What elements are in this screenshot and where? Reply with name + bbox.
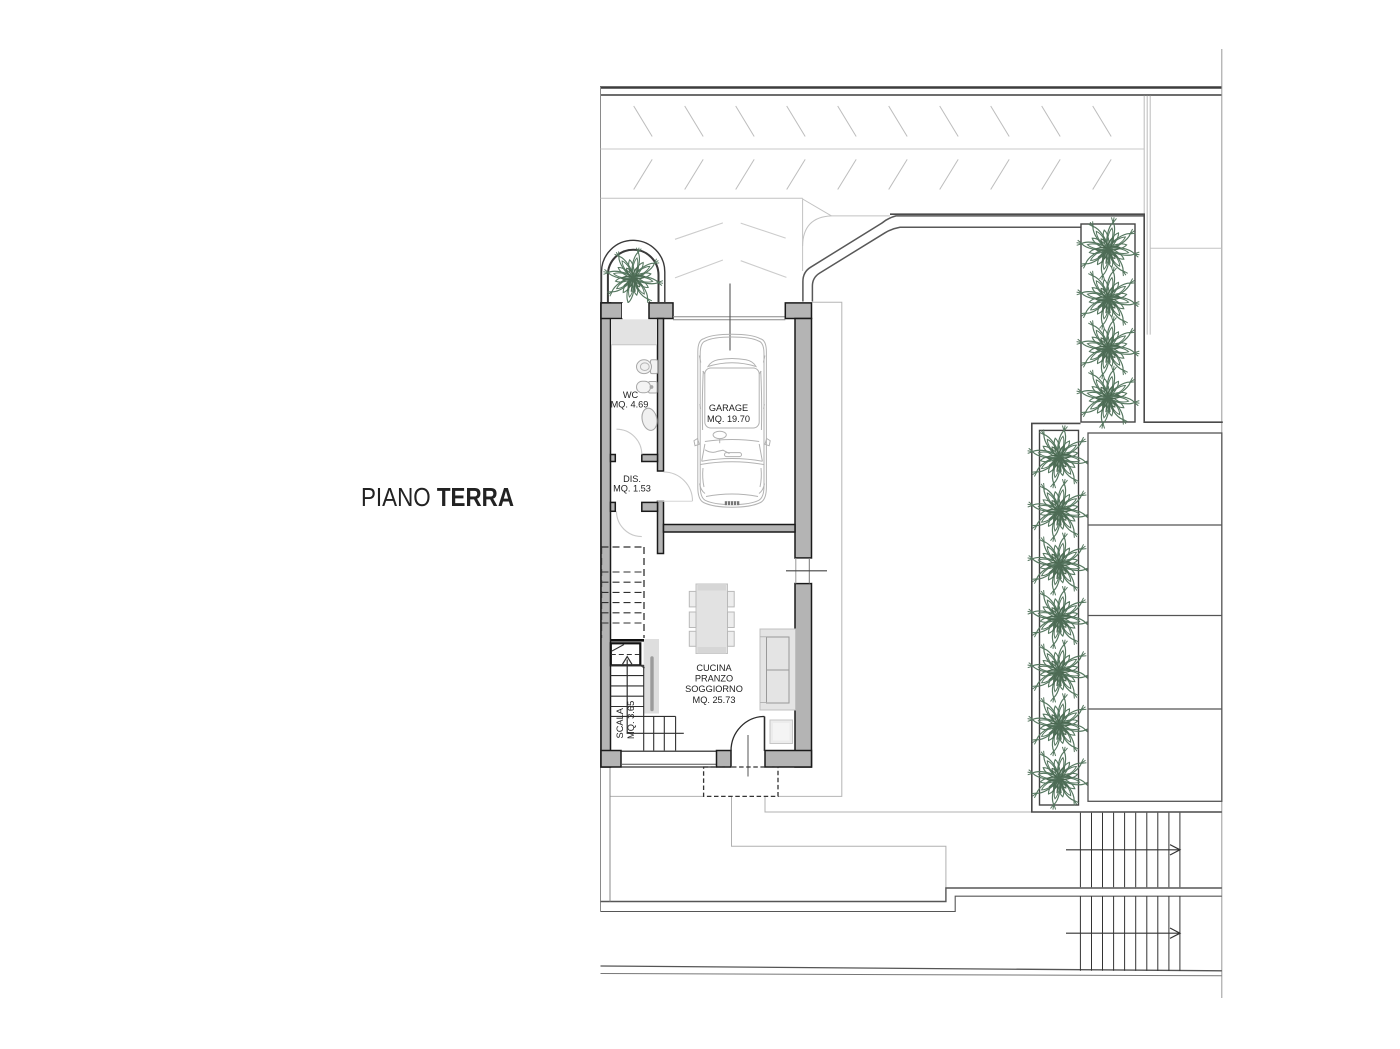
svg-text:MQ. 19.70: MQ. 19.70 (707, 414, 750, 424)
svg-text:GARAGE: GARAGE (709, 403, 748, 413)
svg-text:MQ. 1.53: MQ. 1.53 (613, 484, 651, 494)
svg-text:SCALA: SCALA (615, 707, 625, 738)
svg-text:WC: WC (623, 390, 639, 400)
svg-text:PIANO TERRA: PIANO TERRA (361, 482, 514, 512)
svg-text:DIS.: DIS. (623, 474, 641, 484)
svg-text:CUCINA: CUCINA (696, 663, 732, 673)
svg-text:MQ. 4.69: MQ. 4.69 (611, 400, 649, 410)
svg-text:SOGGIORNO: SOGGIORNO (685, 684, 743, 694)
svg-text:PRANZO: PRANZO (695, 674, 733, 684)
svg-text:MQ. 25.73: MQ. 25.73 (693, 695, 736, 705)
